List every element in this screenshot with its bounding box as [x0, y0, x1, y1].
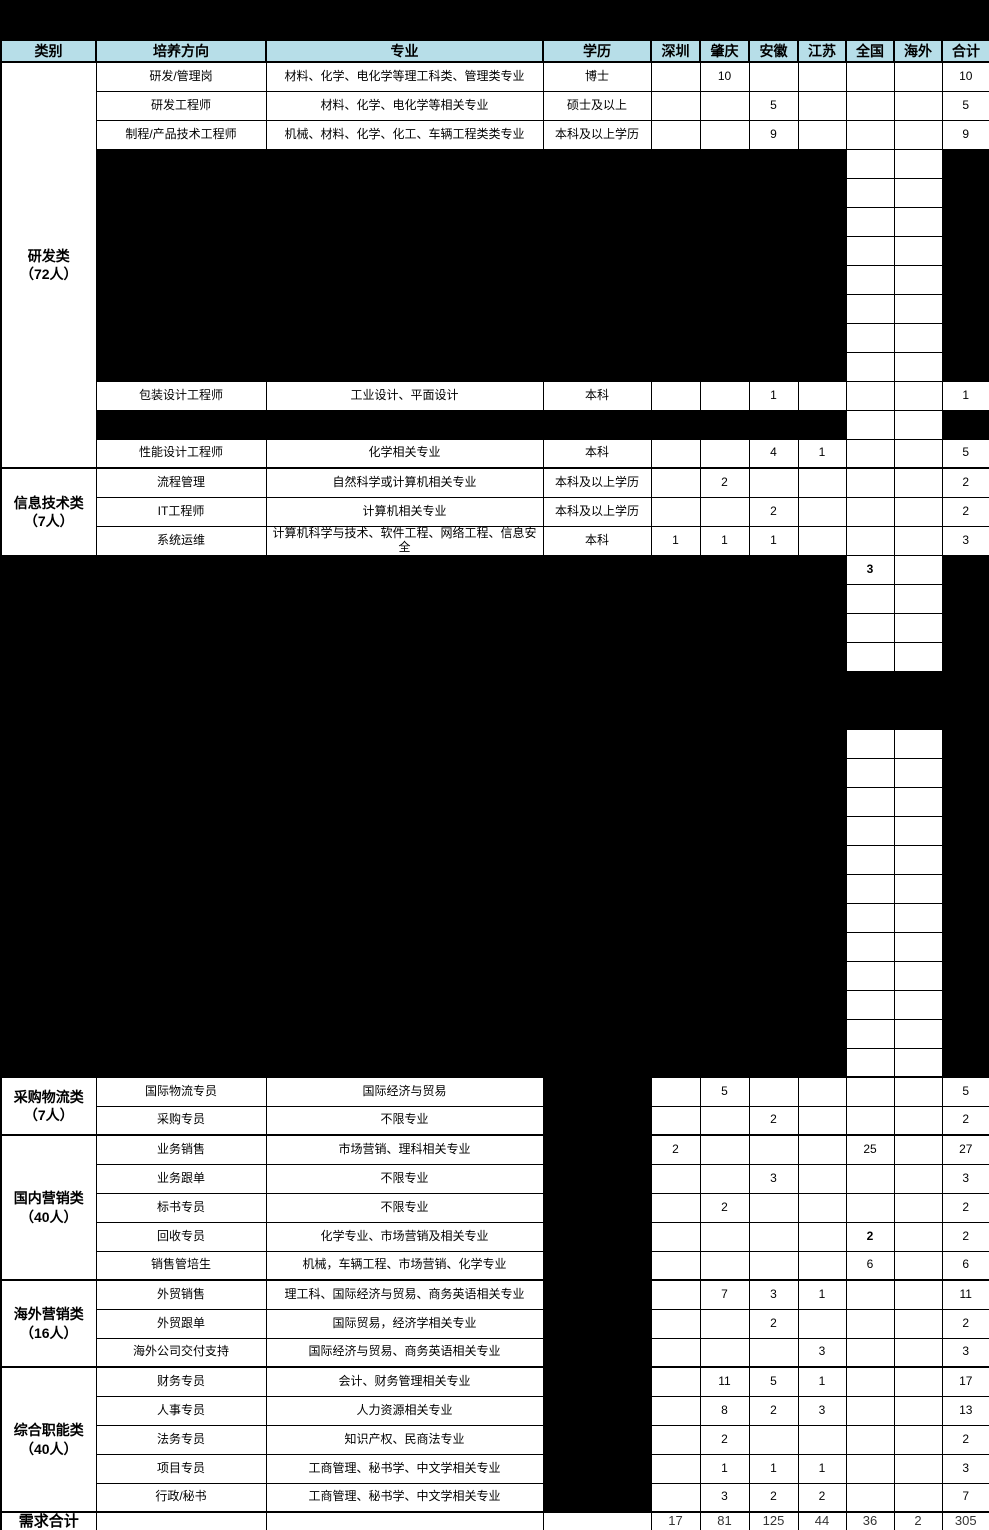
job-direction-cell: 人事专员 — [96, 1396, 266, 1425]
count-anhui: 3 — [749, 1164, 798, 1193]
grand-total-jiangsu: 44 — [798, 1512, 846, 1530]
count-national — [846, 265, 894, 294]
count-total: 6 — [942, 1251, 989, 1280]
count-overseas — [894, 207, 942, 236]
count-anhui: 2 — [749, 1396, 798, 1425]
count-overseas — [894, 1454, 942, 1483]
count-national — [846, 903, 894, 932]
count-overseas — [894, 555, 942, 584]
job-education-cell: 本科及以上学历 — [543, 497, 651, 526]
count-national — [846, 178, 894, 207]
count-national — [846, 468, 894, 497]
job-major-cell: 机械，车辆工程、市场营销、化学专业 — [266, 1251, 543, 1280]
count-shenzhen — [651, 1222, 700, 1251]
redacted-block — [942, 149, 989, 381]
count-shenzhen — [651, 1193, 700, 1222]
count-shenzhen — [651, 468, 700, 497]
category-cell-functions: 综合职能类 （40人） — [1, 1367, 96, 1512]
col-header-zhaoqing: 肇庆 — [700, 40, 749, 62]
count-zhaoqing: 3 — [700, 1483, 749, 1512]
count-anhui: 2 — [749, 1483, 798, 1512]
job-direction-cell: 外贸跟单 — [96, 1309, 266, 1338]
job-education-cell: 硕士及以上 — [543, 91, 651, 120]
job-major-cell: 会计、财务管理相关专业 — [266, 1367, 543, 1396]
count-jiangsu — [798, 468, 846, 497]
count-overseas — [894, 787, 942, 816]
job-education-cell: 本科 — [543, 439, 651, 468]
count-zhaoqing — [700, 91, 749, 120]
count-zhaoqing — [700, 439, 749, 468]
category-label: 国内营销类 — [14, 1190, 84, 1206]
job-major-cell: 化学相关专业 — [266, 439, 543, 468]
count-anhui — [749, 1425, 798, 1454]
count-national — [846, 1425, 894, 1454]
count-jiangsu — [798, 91, 846, 120]
count-zhaoqing — [700, 1135, 749, 1164]
count-shenzhen — [651, 381, 700, 410]
count-shenzhen — [651, 439, 700, 468]
count-national: 6 — [846, 1251, 894, 1280]
count-national — [846, 526, 894, 555]
redacted-block — [942, 555, 989, 671]
count-shenzhen — [651, 497, 700, 526]
count-total: 2 — [942, 1222, 989, 1251]
count-jiangsu: 1 — [798, 1280, 846, 1309]
count-overseas — [894, 381, 942, 410]
count-overseas — [894, 62, 942, 91]
count-shenzhen — [651, 1309, 700, 1338]
table-row: 系统运维 计算机科学与技术、软件工程、网络工程、信息安全 本科 1 1 1 3 — [1, 526, 989, 555]
count-anhui: 4 — [749, 439, 798, 468]
count-overseas — [894, 1048, 942, 1077]
count-total: 10 — [942, 62, 989, 91]
count-jiangsu — [798, 526, 846, 555]
count-overseas — [894, 729, 942, 758]
count-anhui: 9 — [749, 120, 798, 149]
count-zhaoqing — [700, 1338, 749, 1367]
count-anhui: 2 — [749, 1309, 798, 1338]
count-shenzhen — [651, 1367, 700, 1396]
job-major-cell: 市场营销、理科相关专业 — [266, 1135, 543, 1164]
count-anhui — [749, 1251, 798, 1280]
category-label: 研发类 — [28, 248, 70, 264]
category-count: （7人） — [24, 1107, 74, 1123]
col-header-direction: 培养方向 — [96, 40, 266, 62]
count-overseas — [894, 323, 942, 352]
count-overseas — [894, 932, 942, 961]
count-national — [846, 1396, 894, 1425]
category-count: （72人） — [20, 266, 78, 282]
count-anhui: 1 — [749, 381, 798, 410]
count-anhui — [749, 1222, 798, 1251]
count-overseas — [894, 352, 942, 381]
count-overseas — [894, 1019, 942, 1048]
count-national — [846, 1106, 894, 1135]
count-zhaoqing: 7 — [700, 1280, 749, 1309]
count-total: 1 — [942, 381, 989, 410]
job-direction-cell: IT工程师 — [96, 497, 266, 526]
category-count: （7人） — [24, 513, 74, 529]
table-row: 包装设计工程师 工业设计、平面设计 本科 1 1 — [1, 381, 989, 410]
grand-total-anhui: 125 — [749, 1512, 798, 1530]
count-zhaoqing — [700, 497, 749, 526]
job-direction-cell: 流程管理 — [96, 468, 266, 497]
count-overseas — [894, 178, 942, 207]
count-overseas — [894, 1367, 942, 1396]
col-header-education: 学历 — [543, 40, 651, 62]
count-shenzhen — [651, 1338, 700, 1367]
job-education-cell: 本科及以上学历 — [543, 120, 651, 149]
count-anhui — [749, 62, 798, 91]
count-overseas — [894, 584, 942, 613]
redacted-education-column — [543, 1077, 651, 1512]
count-total: 5 — [942, 91, 989, 120]
grand-total-direction-empty — [96, 1512, 266, 1530]
count-anhui — [749, 1193, 798, 1222]
count-overseas — [894, 526, 942, 555]
count-national — [846, 845, 894, 874]
redacted-row: 3 — [1, 555, 989, 584]
count-overseas — [894, 149, 942, 178]
count-jiangsu: 3 — [798, 1338, 846, 1367]
job-direction-cell: 回收专员 — [96, 1222, 266, 1251]
table-row: 性能设计工程师 化学相关专业 本科 4 1 5 — [1, 439, 989, 468]
count-national — [846, 1483, 894, 1512]
table-row: 采购物流类 （7人） 国际物流专员 国际经济与贸易 5 5 — [1, 1077, 989, 1106]
count-total: 3 — [942, 1164, 989, 1193]
job-direction-cell: 项目专员 — [96, 1454, 266, 1483]
count-national — [846, 236, 894, 265]
count-national — [846, 613, 894, 642]
count-jiangsu — [798, 1222, 846, 1251]
count-overseas — [894, 294, 942, 323]
count-shenzhen — [651, 62, 700, 91]
job-direction-cell: 研发工程师 — [96, 91, 266, 120]
count-national — [846, 1048, 894, 1077]
count-total: 5 — [942, 439, 989, 468]
count-anhui: 1 — [749, 1454, 798, 1483]
col-header-anhui: 安徽 — [749, 40, 798, 62]
count-overseas — [894, 1164, 942, 1193]
job-direction-cell: 研发/管理岗 — [96, 62, 266, 91]
count-shenzhen: 2 — [651, 1135, 700, 1164]
count-shenzhen — [651, 120, 700, 149]
count-jiangsu — [798, 1309, 846, 1338]
count-anhui — [749, 1077, 798, 1106]
count-national — [846, 642, 894, 671]
count-shenzhen — [651, 91, 700, 120]
redacted-block — [96, 410, 846, 439]
job-education-cell: 本科 — [543, 526, 651, 555]
count-national — [846, 1280, 894, 1309]
redacted-block — [1, 729, 846, 1077]
count-zhaoqing — [700, 1309, 749, 1338]
redacted-block — [1, 555, 846, 671]
table-row: 研发类 （72人） 研发/管理岗 材料、化学、电化学等理工科类、管理类专业 博士… — [1, 62, 989, 91]
count-national — [846, 1077, 894, 1106]
count-total: 11 — [942, 1280, 989, 1309]
category-label: 海外营销类 — [14, 1306, 84, 1322]
count-zhaoqing — [700, 1222, 749, 1251]
category-cell-domestic: 国内营销类 （40人） — [1, 1135, 96, 1280]
table-row: 法务专员 知识产权、民商法专业 2 2 — [1, 1425, 989, 1454]
job-major-cell: 不限专业 — [266, 1106, 543, 1135]
count-zhaoqing: 2 — [700, 1425, 749, 1454]
table-row: IT工程师 计算机相关专业 本科及以上学历 2 2 — [1, 497, 989, 526]
count-overseas — [894, 990, 942, 1019]
count-overseas — [894, 642, 942, 671]
job-education-cell: 本科 — [543, 381, 651, 410]
count-total: 5 — [942, 1077, 989, 1106]
count-shenzhen — [651, 1164, 700, 1193]
job-major-cell: 工商管理、秘书学、中文学相关专业 — [266, 1454, 543, 1483]
count-national — [846, 91, 894, 120]
count-national — [846, 961, 894, 990]
job-major-cell: 人力资源相关专业 — [266, 1396, 543, 1425]
count-jiangsu: 2 — [798, 1483, 846, 1512]
count-jiangsu: 1 — [798, 1454, 846, 1483]
table-row: 行政/秘书 工商管理、秘书学、中文学相关专业 3 2 2 7 — [1, 1483, 989, 1512]
count-zhaoqing: 2 — [700, 1193, 749, 1222]
count-shenzhen — [651, 1425, 700, 1454]
count-national — [846, 584, 894, 613]
count-total: 2 — [942, 1425, 989, 1454]
redacted-block — [96, 149, 846, 381]
count-anhui: 5 — [749, 91, 798, 120]
table-row: 标书专员 不限专业 2 2 — [1, 1193, 989, 1222]
count-overseas — [894, 903, 942, 932]
grand-total-sum: 305 — [942, 1512, 989, 1530]
count-national: 25 — [846, 1135, 894, 1164]
category-cell-it: 信息技术类 （7人） — [1, 468, 96, 555]
count-shenzhen: 1 — [651, 526, 700, 555]
count-zhaoqing: 1 — [700, 1454, 749, 1483]
count-national — [846, 381, 894, 410]
job-major-cell: 机械、材料、化学、化工、车辆工程类类专业 — [266, 120, 543, 149]
count-national — [846, 1367, 894, 1396]
count-jiangsu — [798, 1425, 846, 1454]
category-count: （40人） — [20, 1209, 78, 1225]
job-major-cell: 计算机科学与技术、软件工程、网络工程、信息安全 — [266, 526, 543, 555]
count-overseas — [894, 845, 942, 874]
count-total: 2 — [942, 1106, 989, 1135]
count-anhui: 1 — [749, 526, 798, 555]
count-overseas — [894, 1396, 942, 1425]
count-national: 2 — [846, 1222, 894, 1251]
job-major-cell: 国际经济与贸易 — [266, 1077, 543, 1106]
count-anhui — [749, 1135, 798, 1164]
col-header-overseas: 海外 — [894, 40, 942, 62]
table-row: 业务跟单 不限专业 3 3 — [1, 1164, 989, 1193]
category-cell-overseas: 海外营销类 （16人） — [1, 1280, 96, 1367]
count-zhaoqing: 2 — [700, 468, 749, 497]
count-zhaoqing: 11 — [700, 1367, 749, 1396]
col-header-shenzhen: 深圳 — [651, 40, 700, 62]
count-national — [846, 932, 894, 961]
count-total: 7 — [942, 1483, 989, 1512]
job-direction-cell: 财务专员 — [96, 1367, 266, 1396]
count-anhui: 3 — [749, 1280, 798, 1309]
count-zhaoqing — [700, 1164, 749, 1193]
header-row: 类别 培养方向 专业 学历 深圳 肇庆 安徽 江苏 全国 海外 合计 — [1, 40, 989, 62]
category-cell-logistics: 采购物流类 （7人） — [1, 1077, 96, 1135]
job-major-cell: 不限专业 — [266, 1164, 543, 1193]
count-jiangsu — [798, 1135, 846, 1164]
count-zhaoqing — [700, 120, 749, 149]
job-major-cell: 材料、化学、电化学等理工科类、管理类专业 — [266, 62, 543, 91]
job-direction-cell: 包装设计工程师 — [96, 381, 266, 410]
count-jiangsu — [798, 1193, 846, 1222]
count-overseas — [894, 468, 942, 497]
job-direction-cell: 标书专员 — [96, 1193, 266, 1222]
count-zhaoqing: 10 — [700, 62, 749, 91]
grand-total-overseas: 2 — [894, 1512, 942, 1530]
table-row: 销售管培生 机械，车辆工程、市场营销、化学专业 6 6 — [1, 1251, 989, 1280]
job-direction-cell: 国际物流专员 — [96, 1077, 266, 1106]
count-national — [846, 352, 894, 381]
job-direction-cell: 海外公司交付支持 — [96, 1338, 266, 1367]
col-header-jiangsu: 江苏 — [798, 40, 846, 62]
count-national — [846, 207, 894, 236]
col-header-national: 全国 — [846, 40, 894, 62]
col-header-major: 专业 — [266, 40, 543, 62]
count-jiangsu — [798, 120, 846, 149]
category-label: 采购物流类 — [14, 1089, 84, 1105]
count-national — [846, 497, 894, 526]
count-total: 9 — [942, 120, 989, 149]
grand-total-row: 需求合计 17 81 125 44 36 2 305 — [1, 1512, 989, 1530]
count-total: 17 — [942, 1367, 989, 1396]
job-major-cell: 工业设计、平面设计 — [266, 381, 543, 410]
redacted-row — [1, 410, 989, 439]
count-national — [846, 1338, 894, 1367]
count-total: 3 — [942, 526, 989, 555]
count-shenzhen — [651, 1454, 700, 1483]
count-national — [846, 1309, 894, 1338]
count-overseas — [894, 1222, 942, 1251]
redacted-block — [942, 410, 989, 439]
table-row: 信息技术类 （7人） 流程管理 自然科学或计算机相关专业 本科及以上学历 2 2 — [1, 468, 989, 497]
count-national — [846, 1454, 894, 1483]
count-national — [846, 1019, 894, 1048]
count-shenzhen — [651, 1483, 700, 1512]
count-anhui — [749, 468, 798, 497]
grand-total-label: 需求合计 — [1, 1512, 96, 1530]
job-major-cell: 不限专业 — [266, 1193, 543, 1222]
count-total: 2 — [942, 497, 989, 526]
count-shenzhen — [651, 1106, 700, 1135]
count-overseas — [894, 874, 942, 903]
grand-total-education-empty — [543, 1512, 651, 1530]
job-direction-cell: 行政/秘书 — [96, 1483, 266, 1512]
count-overseas — [894, 91, 942, 120]
job-major-cell: 国际贸易，经济学相关专业 — [266, 1309, 543, 1338]
table-row: 人事专员 人力资源相关专业 8 2 3 13 — [1, 1396, 989, 1425]
count-national — [846, 294, 894, 323]
count-overseas — [894, 816, 942, 845]
count-national — [846, 62, 894, 91]
count-national: 3 — [846, 555, 894, 584]
count-shenzhen — [651, 1280, 700, 1309]
table-row: 采购专员 不限专业 2 2 — [1, 1106, 989, 1135]
recruitment-table-screenshot: 类别 培养方向 专业 学历 深圳 肇庆 安徽 江苏 全国 海外 合计 研发类 （… — [0, 0, 989, 1530]
count-jiangsu — [798, 497, 846, 526]
count-overseas — [894, 1135, 942, 1164]
job-direction-cell: 法务专员 — [96, 1425, 266, 1454]
job-major-cell: 知识产权、民商法专业 — [266, 1425, 543, 1454]
count-total: 2 — [942, 468, 989, 497]
job-direction-cell: 制程/产品技术工程师 — [96, 120, 266, 149]
job-major-cell: 自然科学或计算机相关专业 — [266, 468, 543, 497]
count-shenzhen — [651, 1396, 700, 1425]
job-direction-cell: 采购专员 — [96, 1106, 266, 1135]
table-row: 回收专员 化学专业、市场营销及相关专业 2 2 — [1, 1222, 989, 1251]
count-overseas — [894, 120, 942, 149]
count-jiangsu — [798, 1106, 846, 1135]
count-overseas — [894, 236, 942, 265]
count-national — [846, 816, 894, 845]
job-major-cell: 国际经济与贸易、商务英语相关专业 — [266, 1338, 543, 1367]
count-national — [846, 120, 894, 149]
table-row: 研发工程师 材料、化学、电化学等相关专业 硕士及以上 5 5 — [1, 91, 989, 120]
job-direction-cell: 业务跟单 — [96, 1164, 266, 1193]
redacted-top-banner — [0, 0, 989, 39]
count-overseas — [894, 439, 942, 468]
job-education-cell: 博士 — [543, 62, 651, 91]
table-row: 海外公司交付支持 国际经济与贸易、商务英语相关专业 3 3 — [1, 1338, 989, 1367]
job-direction-cell: 性能设计工程师 — [96, 439, 266, 468]
count-shenzhen — [651, 1251, 700, 1280]
count-jiangsu: 3 — [798, 1396, 846, 1425]
count-anhui: 2 — [749, 1106, 798, 1135]
count-national — [846, 439, 894, 468]
count-overseas — [894, 1309, 942, 1338]
job-direction-cell: 业务销售 — [96, 1135, 266, 1164]
job-major-cell: 理工科、国际经济与贸易、商务英语相关专业 — [266, 1280, 543, 1309]
count-jiangsu — [798, 1077, 846, 1106]
job-major-cell: 工商管理、秘书学、中文学相关专业 — [266, 1483, 543, 1512]
job-education-cell: 本科及以上学历 — [543, 468, 651, 497]
count-overseas — [894, 1483, 942, 1512]
count-jiangsu: 1 — [798, 439, 846, 468]
table-row: 海外营销类 （16人） 外贸销售 理工科、国际经济与贸易、商务英语相关专业 7 … — [1, 1280, 989, 1309]
recruitment-demand-table: 类别 培养方向 专业 学历 深圳 肇庆 安徽 江苏 全国 海外 合计 研发类 （… — [0, 39, 989, 1530]
count-jiangsu — [798, 1251, 846, 1280]
count-total: 2 — [942, 1193, 989, 1222]
count-total: 27 — [942, 1135, 989, 1164]
count-national — [846, 787, 894, 816]
count-total: 2 — [942, 1309, 989, 1338]
count-overseas — [894, 497, 942, 526]
count-national — [846, 410, 894, 439]
redacted-block — [1, 671, 989, 729]
count-national — [846, 1193, 894, 1222]
category-cell-rd: 研发类 （72人） — [1, 62, 96, 468]
count-jiangsu — [798, 381, 846, 410]
count-national — [846, 758, 894, 787]
count-shenzhen — [651, 1077, 700, 1106]
count-total: 13 — [942, 1396, 989, 1425]
category-count: （40人） — [20, 1441, 78, 1457]
count-overseas — [894, 613, 942, 642]
table-row: 国内营销类 （40人） 业务销售 市场营销、理科相关专业 2 25 27 — [1, 1135, 989, 1164]
redacted-row — [1, 671, 989, 729]
table-row: 综合职能类 （40人） 财务专员 会计、财务管理相关专业 11 5 1 17 — [1, 1367, 989, 1396]
count-national — [846, 990, 894, 1019]
job-direction-cell: 外贸销售 — [96, 1280, 266, 1309]
count-total: 3 — [942, 1454, 989, 1483]
grand-total-major-empty — [266, 1512, 543, 1530]
